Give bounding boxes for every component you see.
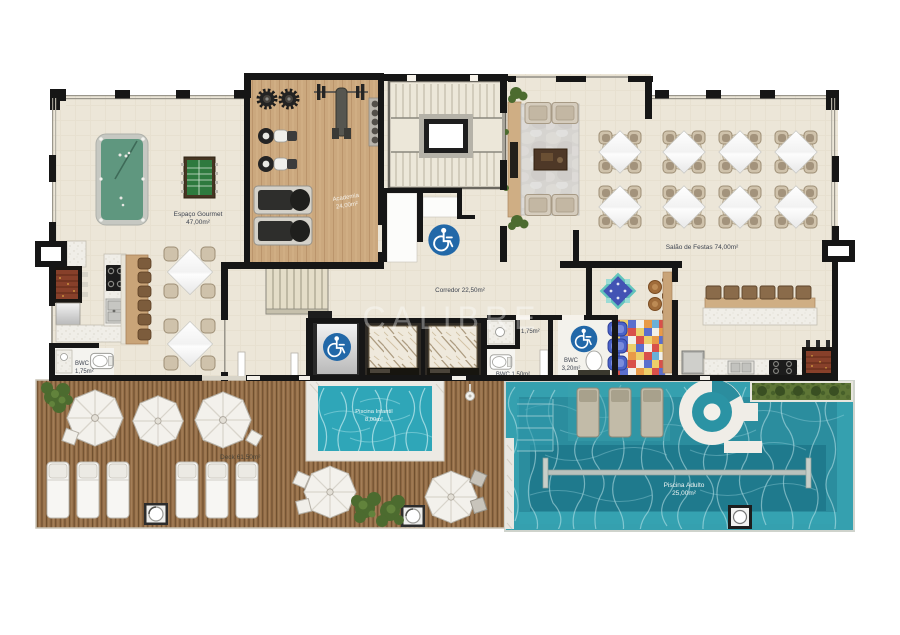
svg-text:Piscina Infantil: Piscina Infantil (355, 409, 392, 415)
svg-text:Corredor 22,50m²: Corredor 22,50m² (435, 287, 485, 294)
svg-text:BWC: BWC (75, 361, 90, 367)
svg-text:BWC: BWC (564, 358, 579, 364)
svg-text:3,20m²: 3,20m² (562, 366, 581, 372)
svg-text:Piscina Adulto: Piscina Adulto (664, 482, 705, 489)
svg-text:Espaço Gourmet: Espaço Gourmet (174, 211, 223, 218)
svg-text:8,00m²: 8,00m² (365, 417, 383, 423)
svg-text:CALIBRE: CALIBRE (363, 300, 542, 336)
svg-text:Salão de Festas 74,00m²: Salão de Festas 74,00m² (666, 244, 739, 251)
svg-text:1,75m²: 1,75m² (75, 369, 94, 375)
svg-text:Deck 61,50m²: Deck 61,50m² (220, 454, 261, 461)
svg-text:25,00m²: 25,00m² (672, 490, 697, 497)
svg-text:47,00m²: 47,00m² (186, 219, 211, 226)
